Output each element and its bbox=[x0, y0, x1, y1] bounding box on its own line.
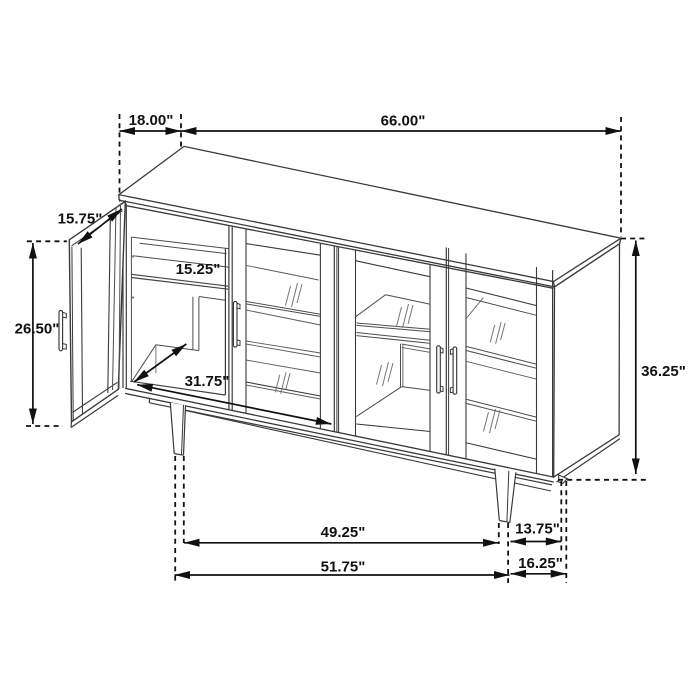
svg-text:31.75": 31.75" bbox=[185, 373, 230, 390]
svg-text:13.75": 13.75" bbox=[515, 521, 560, 538]
svg-text:16.25": 16.25" bbox=[518, 555, 563, 572]
svg-text:15.75": 15.75" bbox=[58, 211, 103, 228]
svg-text:15.25": 15.25" bbox=[176, 261, 221, 278]
svg-text:36.25": 36.25" bbox=[641, 363, 686, 380]
svg-text:66.00": 66.00" bbox=[381, 113, 426, 130]
svg-text:18.00": 18.00" bbox=[129, 112, 174, 129]
svg-text:49.25": 49.25" bbox=[321, 524, 366, 541]
svg-text:26.50": 26.50" bbox=[15, 321, 60, 338]
svg-text:51.75": 51.75" bbox=[321, 559, 366, 576]
